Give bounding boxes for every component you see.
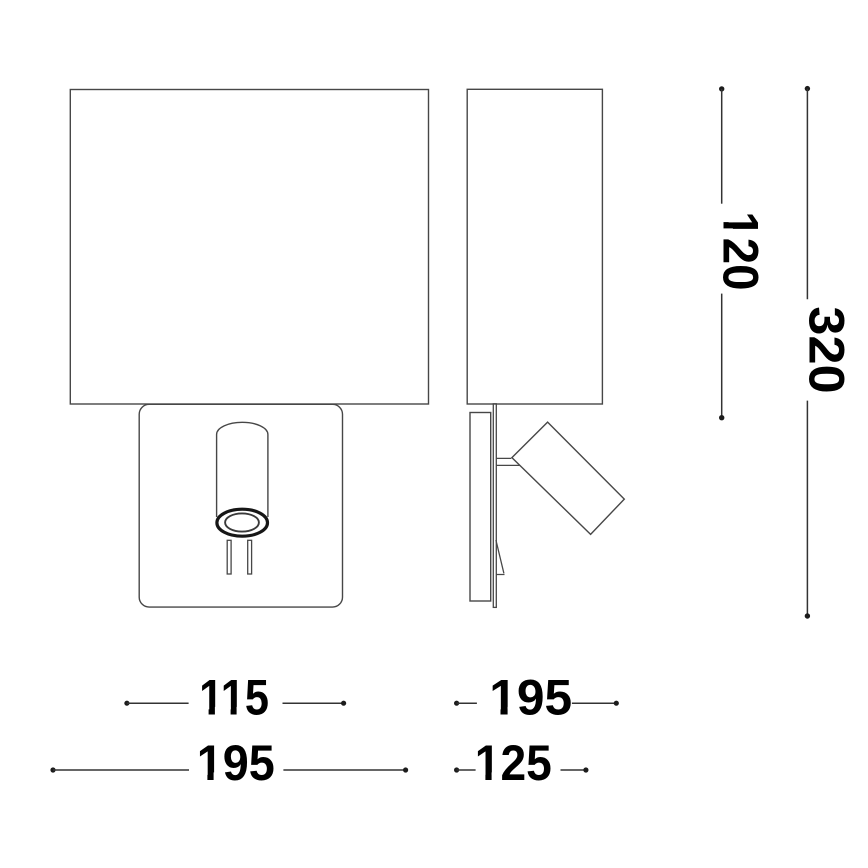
- svg-text:195: 195: [489, 670, 572, 726]
- svg-text:115: 115: [199, 670, 269, 726]
- svg-text:320: 320: [799, 306, 855, 394]
- svg-text:120: 120: [713, 211, 769, 290]
- svg-text:125: 125: [475, 735, 552, 791]
- svg-text:195: 195: [197, 735, 275, 791]
